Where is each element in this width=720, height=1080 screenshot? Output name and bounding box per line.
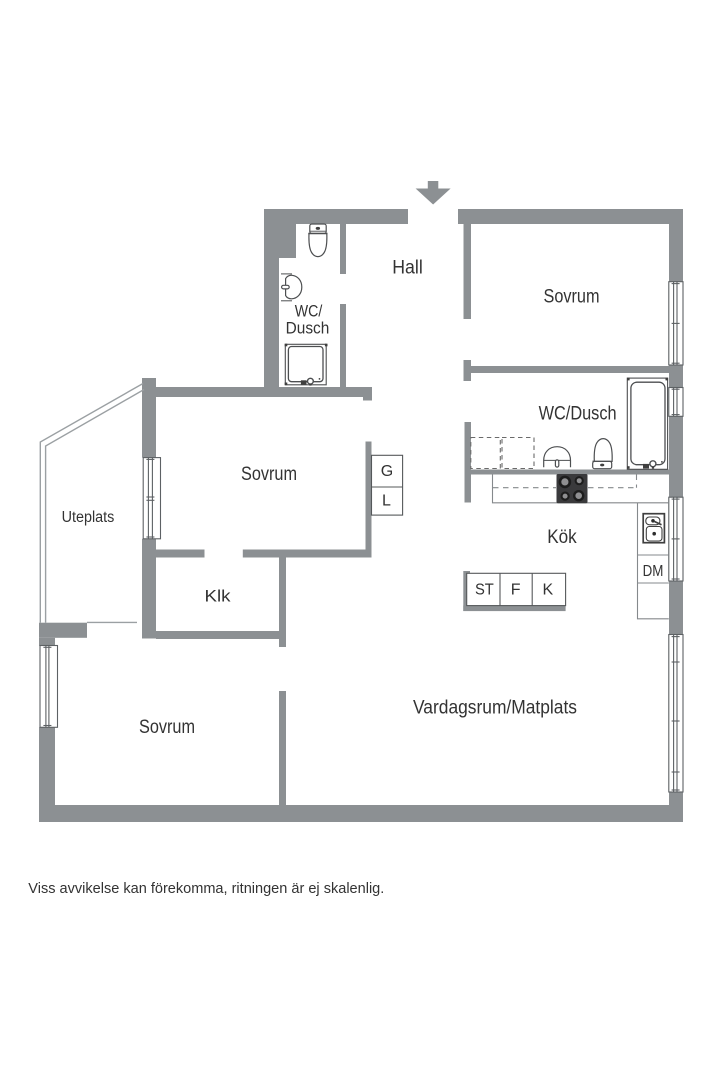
- svg-text:WC/Dusch: WC/Dusch: [539, 404, 617, 425]
- svg-text:Dusch: Dusch: [286, 320, 330, 338]
- svg-text:Kök: Kök: [547, 527, 577, 548]
- svg-text:ST: ST: [475, 582, 494, 599]
- svg-text:G: G: [381, 463, 393, 480]
- svg-text:Klk: Klk: [205, 588, 232, 606]
- svg-text:Viss avvikelse kan förekomma,: Viss avvikelse kan förekomma, ritningen …: [28, 880, 384, 897]
- svg-text:Sovrum: Sovrum: [139, 717, 195, 738]
- svg-text:L: L: [382, 493, 391, 510]
- svg-text:Sovrum: Sovrum: [241, 464, 297, 485]
- svg-text:DM: DM: [643, 563, 664, 580]
- svg-text:Vardagsrum/Matplats: Vardagsrum/Matplats: [413, 698, 577, 719]
- svg-text:Hall: Hall: [392, 258, 423, 279]
- svg-text:Uteplats: Uteplats: [62, 509, 115, 526]
- svg-text:F: F: [511, 582, 521, 599]
- svg-text:K: K: [542, 582, 553, 599]
- svg-text:Sovrum: Sovrum: [544, 287, 600, 308]
- svg-text:WC/: WC/: [295, 303, 323, 321]
